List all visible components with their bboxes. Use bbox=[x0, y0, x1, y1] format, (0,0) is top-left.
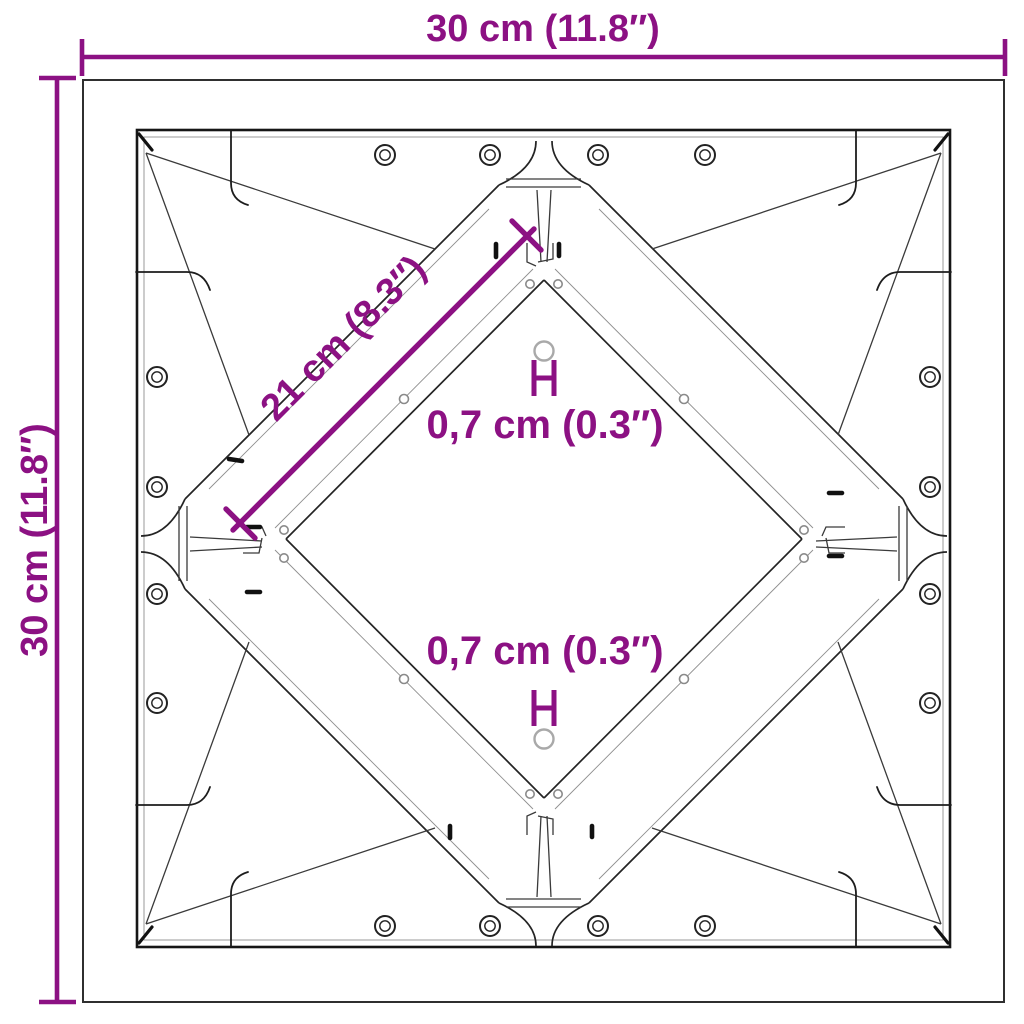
product-dimension-diagram: 30 cm (11.8″) 30 cm (11.8″) 21 cm (8.3″)… bbox=[0, 0, 1024, 1024]
dimension-label-hole-lower: 0,7 cm (0.3″) bbox=[426, 629, 663, 673]
frame-rails bbox=[137, 130, 950, 947]
mounting-hole-top bbox=[535, 342, 554, 361]
dimension-hole-lower: 0,7 cm (0.3″) bbox=[426, 629, 663, 726]
cross-braces bbox=[141, 141, 947, 946]
corner-brackets bbox=[136, 131, 951, 946]
tabletop-outline bbox=[83, 80, 1004, 1002]
hole-diameter-marker-bottom bbox=[534, 690, 554, 726]
dimension-label-width: 30 cm (11.8″) bbox=[426, 8, 660, 50]
hole-diameter-marker-top bbox=[534, 360, 554, 396]
brace-outer-edges bbox=[185, 185, 903, 903]
dimension-label-height: 30 cm (11.8″) bbox=[14, 423, 56, 657]
corner-gussets bbox=[136, 131, 951, 946]
dimension-label-hole-upper: 0,7 cm (0.3″) bbox=[426, 403, 663, 447]
brace-end-tabs bbox=[190, 190, 897, 897]
dimension-hole-upper: 0,7 cm (0.3″) bbox=[426, 360, 663, 447]
dimension-width-top: 30 cm (11.8″) bbox=[82, 8, 1005, 76]
mounting-hole-bottom bbox=[535, 730, 554, 749]
brace-neck-curves bbox=[141, 141, 947, 946]
dimension-brace-diagonal: 21 cm (8.3″) bbox=[226, 221, 541, 538]
diagram-canvas: 30 cm (11.8″) 30 cm (11.8″) 21 cm (8.3″)… bbox=[0, 0, 1024, 1024]
dimension-height-left: 30 cm (11.8″) bbox=[14, 78, 76, 1002]
corner-gusset-lines bbox=[146, 153, 941, 924]
brace-fold-lines bbox=[209, 209, 879, 879]
